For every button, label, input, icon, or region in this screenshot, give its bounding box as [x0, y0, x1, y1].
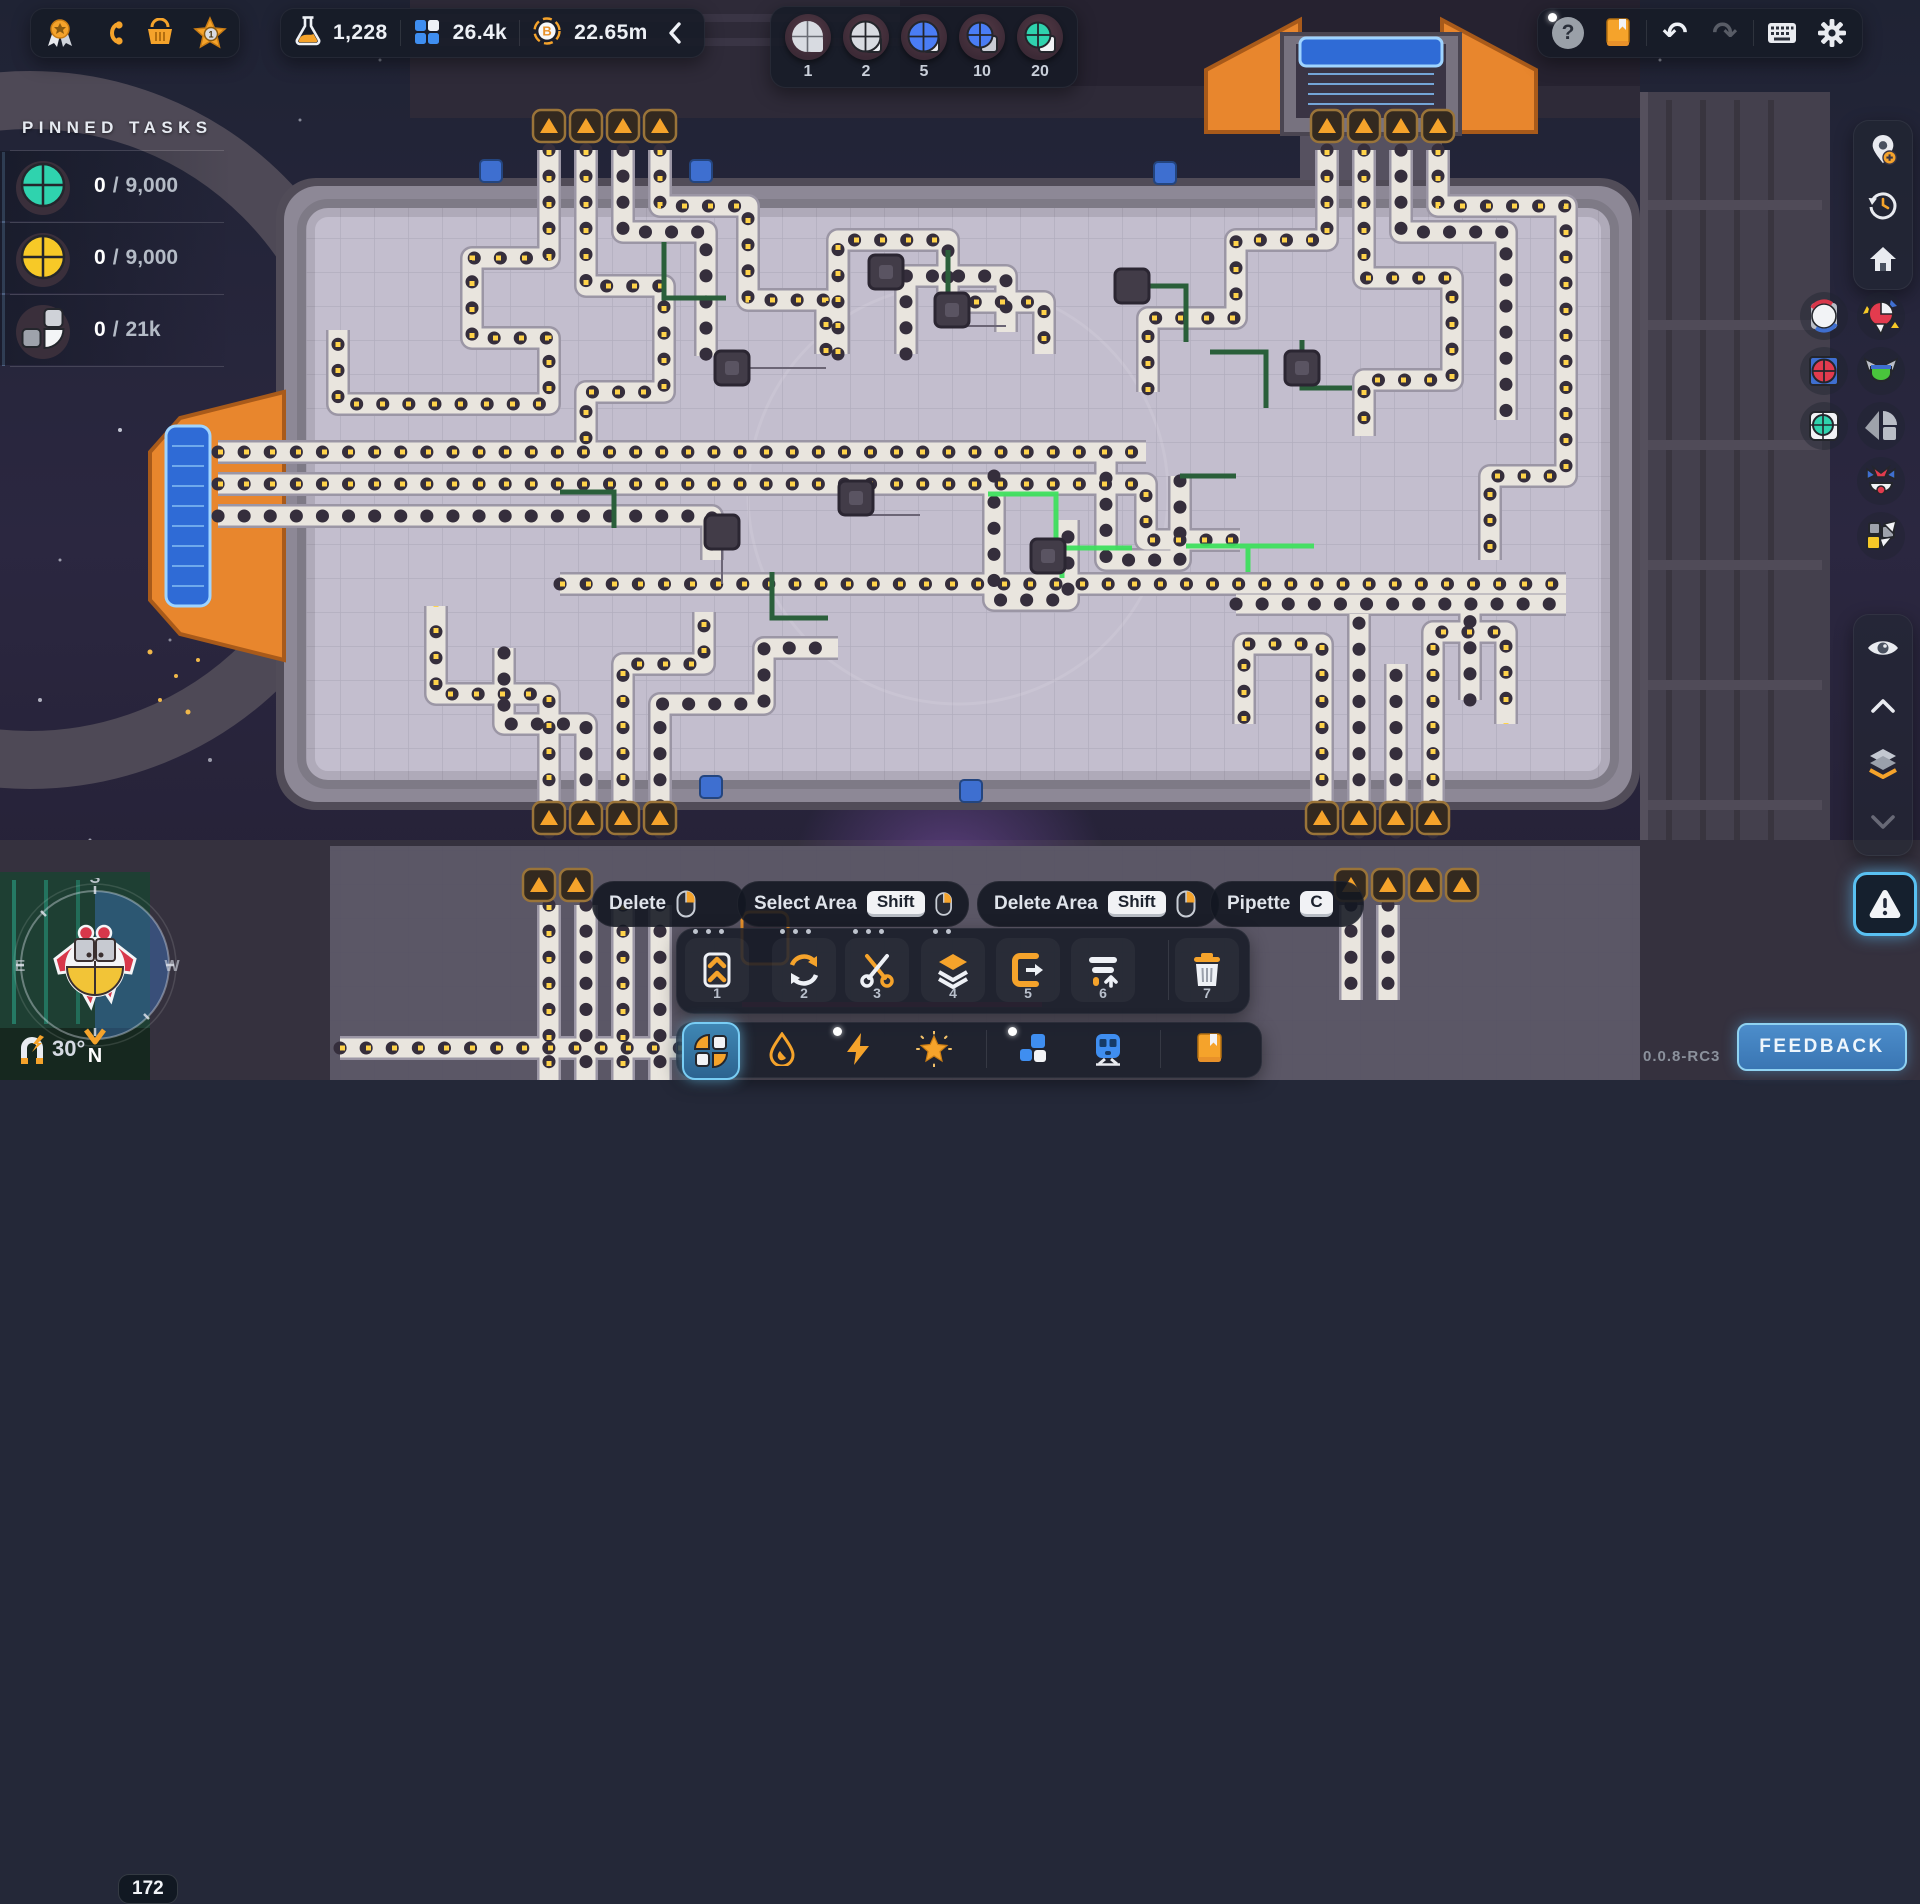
gray-circle-shape-icon: [788, 17, 828, 57]
tool-hotkey: 2: [772, 985, 836, 1001]
rotation-degrees: 30°: [52, 1036, 85, 1062]
shapes-category-icon: [693, 1033, 729, 1069]
tool-paste[interactable]: 5: [996, 938, 1060, 1002]
pinned-task-row[interactable]: 0 / 9,000: [0, 223, 232, 293]
shape-slot-2[interactable]: 2: [837, 14, 895, 81]
paste-icon: [1010, 952, 1046, 988]
map-tools-panel: [1853, 120, 1913, 290]
copy-stack-icon: [934, 951, 972, 989]
tool-pins: [933, 929, 951, 934]
medal-button[interactable]: [37, 11, 83, 55]
history-button[interactable]: [1855, 178, 1911, 232]
shift-keycap: Shift: [867, 891, 925, 918]
undo-icon: ↶: [1662, 16, 1687, 51]
tool-hotkey: 4: [921, 985, 985, 1001]
resources-panel: 1,228 26.4k B 22.65m: [280, 8, 705, 58]
compass-south: S: [90, 878, 101, 887]
category-effects[interactable]: [911, 1026, 957, 1072]
home-button[interactable]: [1855, 232, 1911, 286]
hint-label: Pipette: [1227, 893, 1290, 915]
main-nav-panel: 1: [30, 8, 240, 58]
shape-slot-10[interactable]: 10: [953, 14, 1011, 81]
keybindings-button[interactable]: [1760, 11, 1804, 55]
task-goal: 9,000: [126, 174, 179, 198]
task-current: 0: [94, 174, 106, 198]
tool-trash[interactable]: 7: [1175, 938, 1239, 1002]
gray-windmill-shape-icon: [1862, 407, 1900, 445]
trash-icon: [1190, 951, 1224, 989]
chevron-left-icon: [668, 22, 682, 44]
layer-up-icon: [1870, 698, 1896, 714]
waypoint-shape-button[interactable]: [1857, 292, 1905, 340]
category-trains[interactable]: [1085, 1026, 1131, 1072]
teal-circle-shape-icon: [1020, 17, 1060, 57]
tool-hotkey: 1: [685, 985, 749, 1001]
tool-cut[interactable]: 3: [845, 938, 909, 1002]
waypoint-shape-button[interactable]: [1800, 402, 1848, 450]
tool-belt-planner[interactable]: 1: [685, 938, 749, 1002]
redo-button[interactable]: ↷: [1703, 11, 1747, 55]
collapse-resources-button[interactable]: [660, 11, 690, 55]
hint-pipette: Pipette C: [1210, 881, 1364, 927]
alerts-button[interactable]: [1853, 872, 1917, 936]
waypoint-shape-button[interactable]: [1800, 347, 1848, 395]
waypoint-shape-button[interactable]: [1800, 292, 1848, 340]
teal-circle-white-square-shape-icon: [1806, 408, 1842, 444]
tool-hotkey: 3: [845, 985, 909, 1001]
tool-hotkey: 6: [1071, 985, 1135, 1001]
slot-count: 5: [920, 63, 929, 81]
pinned-task-row[interactable]: 0 / 21k: [0, 295, 232, 365]
category-shapes[interactable]: [682, 1022, 740, 1080]
yellow-gray-squares-shape-icon: [1862, 517, 1900, 555]
book-icon: [1604, 18, 1632, 48]
keyboard-icon: [1767, 22, 1797, 44]
shape-slot-5[interactable]: 5: [895, 14, 953, 81]
lift-icon: [1085, 952, 1121, 988]
shape-slot-20[interactable]: 20: [1011, 14, 1069, 81]
platform-count-badge: 172: [118, 1874, 178, 1904]
tool-rotate[interactable]: 2: [772, 938, 836, 1002]
red-blue-crab-shape-icon: [1862, 462, 1900, 500]
help-button[interactable]: ?: [1546, 11, 1590, 55]
svg-text:1: 1: [208, 30, 213, 40]
visibility-eye-icon: [1867, 637, 1899, 659]
redo-icon: ↷: [1712, 16, 1737, 51]
tool-pins: [853, 929, 884, 934]
system-panel: ? ↶ ↷: [1537, 8, 1863, 58]
compass-east: E: [15, 958, 26, 975]
category-fluids[interactable]: [759, 1026, 805, 1072]
category-wiki[interactable]: [1186, 1026, 1232, 1072]
wiki-book-icon: [1194, 1033, 1224, 1065]
blue-circle-shape-icon: [904, 17, 944, 57]
platforms-notification-dot: [1008, 1027, 1017, 1036]
task-current: 0: [94, 246, 106, 270]
hint-label: Delete Area: [994, 893, 1098, 915]
shop-icon: [145, 18, 175, 48]
belt-planner-icon: [700, 951, 734, 989]
layer-down-icon: [1870, 814, 1896, 830]
teal-circle-shape-icon: [14, 157, 72, 215]
help-icon: ?: [1552, 17, 1584, 49]
red-pinwheel-shape-icon: [1862, 297, 1900, 335]
gray-circle-outlined-shape-icon: [846, 17, 886, 57]
blue-circle-small-shape-icon: [962, 17, 1002, 57]
slot-count: 10: [973, 63, 991, 81]
hint-label: Delete: [609, 893, 666, 915]
rotate-icon: [786, 952, 822, 988]
tool-copy-stack[interactable]: 4: [921, 938, 985, 1002]
undo-button[interactable]: ↶: [1653, 11, 1697, 55]
layers-icon: [1866, 747, 1900, 781]
level-star-button[interactable]: 1: [187, 11, 233, 55]
pinned-tasks-title: PINNED TASKS: [22, 118, 213, 138]
warning-icon: [1868, 889, 1902, 919]
research-flask-icon: [295, 16, 321, 51]
research-points-value: 1,228: [333, 21, 388, 45]
hint-delete: Delete: [592, 881, 746, 927]
task-goal: 21k: [126, 318, 161, 342]
slot-count: 20: [1031, 63, 1049, 81]
tool-hotkey: 7: [1175, 985, 1239, 1001]
gear-icon: [1817, 18, 1847, 48]
version-label: 0.0.8-RC3: [1643, 1048, 1720, 1065]
hint-label: Select Area: [754, 893, 857, 915]
coin-value: 22.65m: [574, 21, 648, 45]
slot-count: 2: [862, 63, 871, 81]
shift-keycap: Shift: [1108, 891, 1166, 918]
magnet-boost-icon[interactable]: [16, 1034, 48, 1071]
waypoint-shape-button[interactable]: [1857, 402, 1905, 450]
medal-icon: [45, 18, 75, 48]
help-notification-dot: [1548, 13, 1557, 22]
compass-west: W: [164, 958, 180, 975]
blueprint-points-value: 26.4k: [453, 21, 508, 45]
layer-down-button[interactable]: [1855, 795, 1911, 849]
milestones-button[interactable]: [87, 11, 133, 55]
pinned-task-row[interactable]: 0 / 9,000: [0, 151, 232, 221]
category-electricity[interactable]: [835, 1026, 881, 1072]
green-blue-v-shape-icon: [1862, 352, 1900, 390]
electricity-notification-dot: [833, 1027, 842, 1036]
waypoint-shape-button[interactable]: [1857, 457, 1905, 505]
cut-icon: [859, 952, 895, 988]
level-star-icon: 1: [193, 16, 227, 50]
history-icon: [1868, 190, 1898, 220]
mouse-right-icon: [1176, 890, 1196, 918]
svg-text:B: B: [542, 23, 551, 38]
coin-icon: B: [532, 16, 562, 51]
waypoint-shape-button[interactable]: [1857, 512, 1905, 560]
effects-category-icon: [916, 1031, 952, 1067]
platforms-category-icon: [1016, 1032, 1050, 1066]
mouse-right-icon: [676, 890, 696, 918]
home-icon: [1868, 245, 1898, 273]
pinned-tasks: 0 / 9,000 0 / 9,000 0 / 21k: [0, 148, 234, 370]
add-waypoint-button[interactable]: [1855, 124, 1911, 178]
compass-north: N: [88, 1045, 102, 1067]
tool-hotkey: 5: [996, 985, 1060, 1001]
shape-amount-panel: 1 2 5 10 20: [770, 6, 1078, 88]
shape-slot-1[interactable]: 1: [779, 14, 837, 81]
task-current: 0: [94, 318, 106, 342]
gray-quad-shape-icon: [14, 301, 72, 359]
guide-button[interactable]: [1596, 11, 1640, 55]
trains-category-icon: [1092, 1032, 1124, 1066]
tool-pins: [780, 929, 811, 934]
electricity-category-icon: [843, 1032, 873, 1066]
layer-up-button[interactable]: [1855, 679, 1911, 733]
category-platforms[interactable]: [1010, 1026, 1056, 1072]
milestones-icon: [95, 18, 125, 48]
red-circle-blue-square-shape-icon: [1806, 353, 1842, 389]
slot-count: 1: [804, 63, 813, 81]
mouse-right-icon: [935, 890, 952, 918]
yellow-circle-shape-icon: [14, 229, 72, 287]
white-circle-swirl-shape-icon: [1806, 298, 1842, 334]
feedback-button[interactable]: FEEDBACK: [1737, 1023, 1907, 1071]
task-goal: 9,000: [126, 246, 179, 270]
shop-button[interactable]: [137, 11, 183, 55]
layer-view-panel: [1853, 614, 1913, 856]
add-waypoint-icon: [1868, 135, 1898, 167]
layers-button[interactable]: [1855, 737, 1911, 791]
tool-lift[interactable]: 6: [1071, 938, 1135, 1002]
fluids-category-icon: [767, 1032, 797, 1066]
waypoint-shape-button[interactable]: [1857, 347, 1905, 395]
c-keycap: C: [1300, 891, 1332, 918]
settings-button[interactable]: [1810, 11, 1854, 55]
blueprint-points-icon: [413, 17, 441, 50]
hint-delete-area: Delete Area Shift: [977, 881, 1219, 927]
tool-pins: [693, 929, 724, 934]
visibility-button[interactable]: [1855, 621, 1911, 675]
hint-select-area: Select Area Shift: [737, 881, 969, 927]
